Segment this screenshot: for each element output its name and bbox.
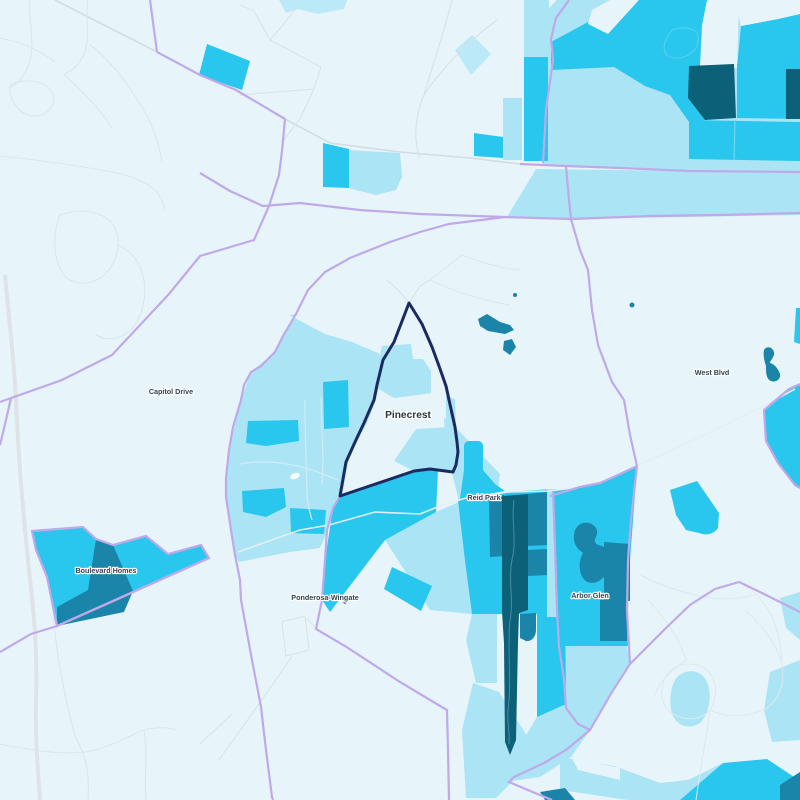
svg-text:Arbor Glen: Arbor Glen xyxy=(571,591,609,600)
svg-text:Capitol Drive: Capitol Drive xyxy=(149,387,193,396)
svg-text:Boulevard Homes: Boulevard Homes xyxy=(75,566,136,575)
svg-text:Ponderosa-Wingate: Ponderosa-Wingate xyxy=(291,593,358,602)
svg-text:Pinecrest: Pinecrest xyxy=(385,410,431,421)
svg-text:Reid Park: Reid Park xyxy=(467,493,500,502)
svg-text:West Blvd: West Blvd xyxy=(695,368,730,377)
